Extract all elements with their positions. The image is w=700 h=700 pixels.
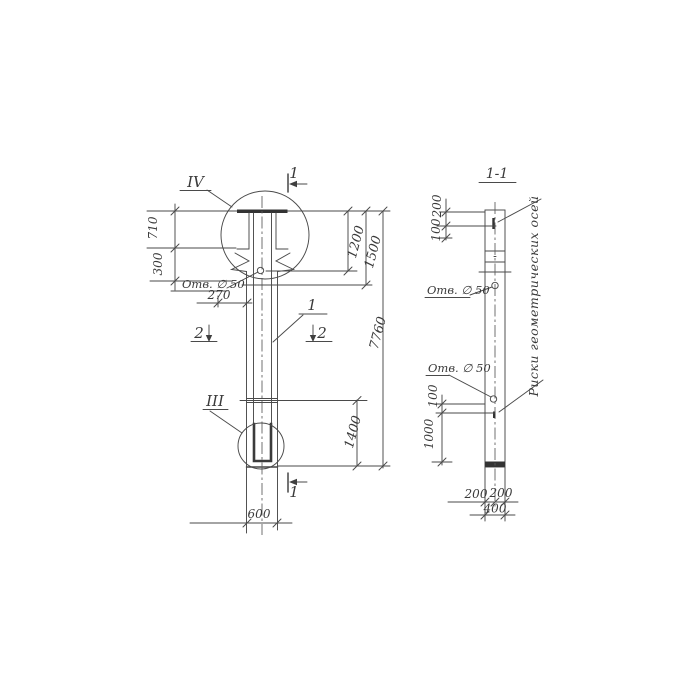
- dim-bottom-200-left: 200: [464, 487, 488, 501]
- section-2-right-arrowhead-icon: [310, 335, 316, 342]
- section-1-top-label: 1: [289, 164, 299, 182]
- dim-mid-100: 100: [426, 384, 440, 407]
- dim-section-mid-extensions: [432, 404, 495, 462]
- corbel-right: [276, 249, 294, 272]
- technical-drawing: IV III 1 1 2 2 1 Отв. ∅ 50 710 300: [0, 0, 700, 700]
- detail-iv-label: IV: [186, 173, 206, 191]
- axis-mark-slot-bottom: [493, 412, 495, 419]
- hole-label-section-top: Отв. ∅ 50: [427, 283, 490, 297]
- drawing-sheet: IV III 1 1 2 2 1 Отв. ∅ 50 710 300: [0, 0, 700, 700]
- dim-top-200: 200: [430, 194, 444, 218]
- column-bottom-liner: [254, 424, 271, 461]
- hole-label-section-bottom: Отв. ∅ 50: [428, 361, 491, 375]
- dim-1400: 1400: [342, 414, 365, 450]
- detail-iv-leader: [180, 190, 232, 207]
- detail-circle-top: [221, 191, 309, 279]
- dim-7760: 7760: [367, 315, 390, 351]
- section-2-left-label: 2: [193, 324, 204, 342]
- detail-iii-label: III: [205, 392, 225, 410]
- dim-710: 710: [146, 216, 160, 239]
- section-2-right-label: 2: [316, 324, 327, 342]
- section-2-left-arrowhead-icon: [206, 335, 212, 342]
- section-view-title: 1-1: [486, 166, 509, 182]
- dim-bottom-400: 400: [483, 502, 507, 516]
- part-callout-label: 1: [307, 296, 317, 314]
- dim-bottom-200-right: 200: [489, 486, 513, 500]
- dim-600: 600: [248, 507, 271, 521]
- column-inner-tube: [254, 213, 272, 457]
- detail-iii-leader: [203, 410, 242, 434]
- section-view: 1-1 Отв. ∅ 50 Отв. ∅ 50 200 100 100 1000: [422, 166, 543, 521]
- dim-1500: 1500: [362, 234, 385, 270]
- section-1-bottom-label: 1: [289, 483, 299, 501]
- dim-1000: 1000: [422, 418, 436, 449]
- dim-270: 270: [207, 288, 231, 302]
- axis-mark-slot-top: [492, 218, 494, 229]
- dim-top-100: 100: [429, 218, 443, 241]
- axis-note-label: Риски геометрических осей: [526, 195, 541, 397]
- dim-300: 300: [151, 252, 165, 275]
- main-view: IV III 1 1 2 2 1 Отв. ∅ 50 710 300: [146, 164, 390, 535]
- hole-main: [257, 267, 263, 273]
- corbel-left: [232, 249, 250, 272]
